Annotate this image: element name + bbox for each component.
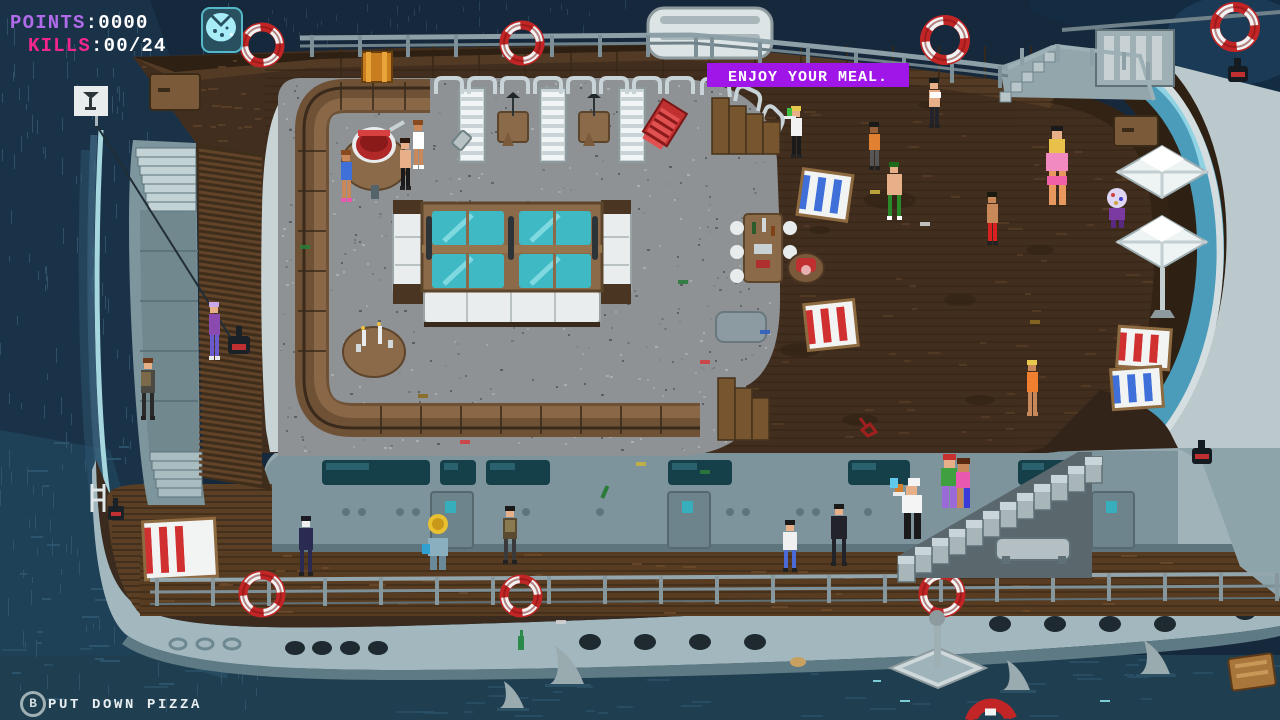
svg-text:ENJOY YOUR MEAL.: ENJOY YOUR MEAL. [728, 69, 888, 86]
